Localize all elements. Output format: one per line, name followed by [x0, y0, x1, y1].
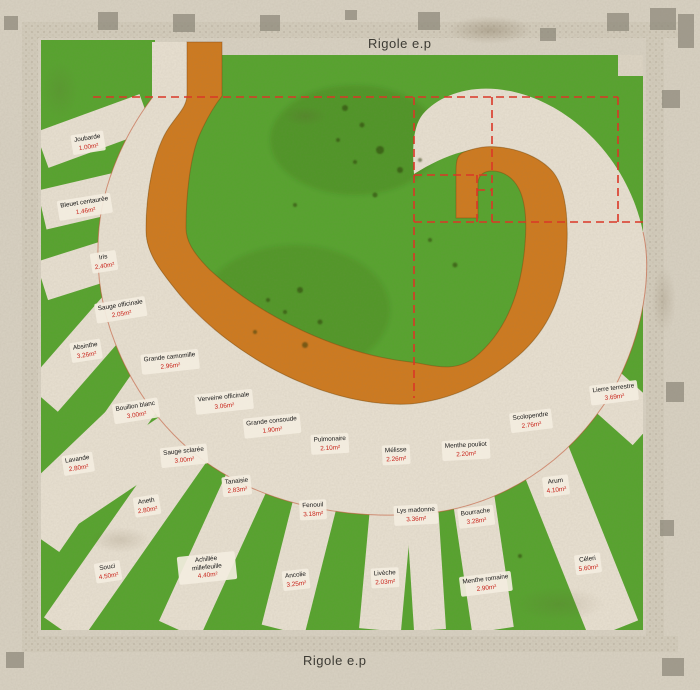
canal-label-bottom: Rigole e.p: [303, 653, 367, 668]
grain-overlay: [0, 0, 700, 690]
garden-plan: Joubarde1.00m²Bleuet centaurée1.46m²Iris…: [0, 0, 700, 690]
garden-plan-drawing: [0, 0, 700, 690]
canal-label-top: Rigole e.p: [368, 36, 432, 51]
